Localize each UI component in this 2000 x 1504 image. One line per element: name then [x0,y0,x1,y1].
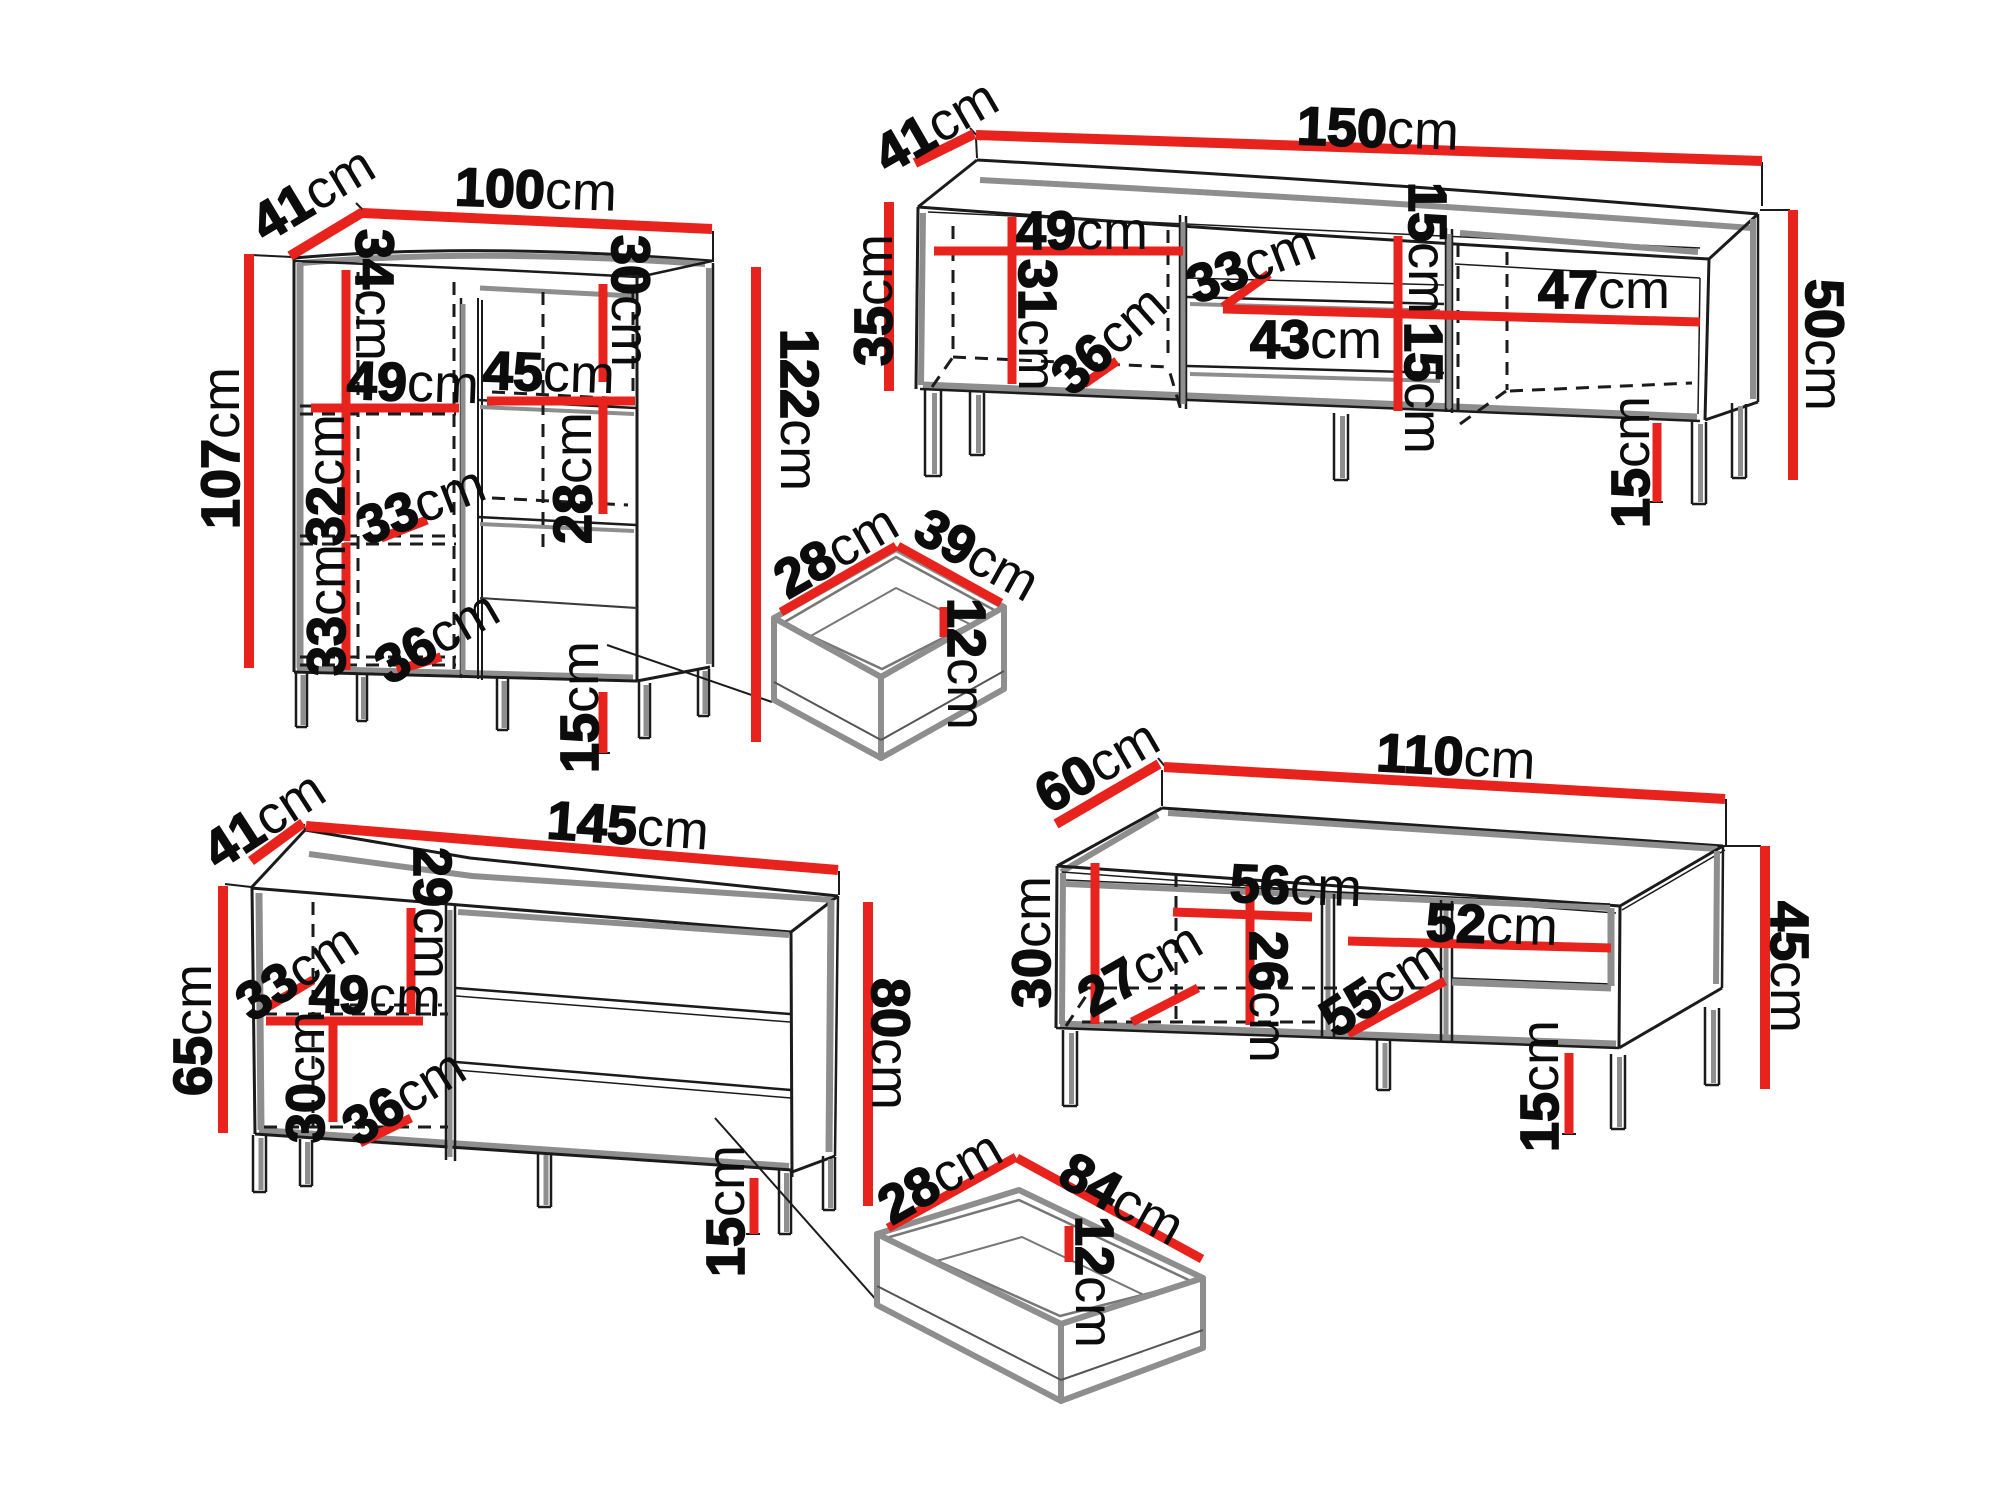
svg-text:43cm: 43cm [1250,310,1382,370]
svg-text:52cm: 52cm [1425,893,1559,958]
svg-text:15cm: 15cm [550,641,610,773]
svg-text:100cm: 100cm [454,157,618,223]
svg-text:50cm: 50cm [1794,279,1854,411]
svg-text:15cm: 15cm [1397,182,1457,314]
svg-text:150cm: 150cm [1296,96,1460,162]
svg-text:145cm: 145cm [545,790,711,861]
svg-text:45cm: 45cm [482,341,616,406]
svg-text:45cm: 45cm [1759,901,1819,1033]
svg-text:30cm: 30cm [276,1011,336,1143]
svg-text:12cm: 12cm [1064,1216,1124,1348]
svg-text:47cm: 47cm [1538,260,1670,320]
svg-text:26cm: 26cm [1238,931,1298,1063]
svg-text:110cm: 110cm [1375,723,1537,791]
svg-text:65cm: 65cm [163,964,223,1096]
svg-text:35cm: 35cm [844,234,904,366]
svg-text:122cm: 122cm [769,329,829,491]
svg-text:49cm: 49cm [1016,201,1148,261]
svg-text:15cm: 15cm [1393,322,1453,454]
svg-text:80cm: 80cm [860,978,920,1110]
svg-text:33cm: 33cm [297,544,357,676]
svg-text:29cm: 29cm [402,847,462,979]
svg-text:30cm: 30cm [1002,876,1062,1008]
svg-text:28cm: 28cm [543,412,603,544]
svg-text:49cm: 49cm [346,351,480,416]
svg-text:32cm: 32cm [296,414,356,546]
svg-text:12cm: 12cm [936,598,996,730]
svg-text:34cm: 34cm [344,229,404,361]
svg-text:15cm: 15cm [1601,396,1661,528]
svg-text:107cm: 107cm [191,367,251,529]
svg-text:56cm: 56cm [1229,854,1363,919]
svg-text:15cm: 15cm [1510,1020,1570,1152]
svg-text:15cm: 15cm [696,1145,756,1277]
